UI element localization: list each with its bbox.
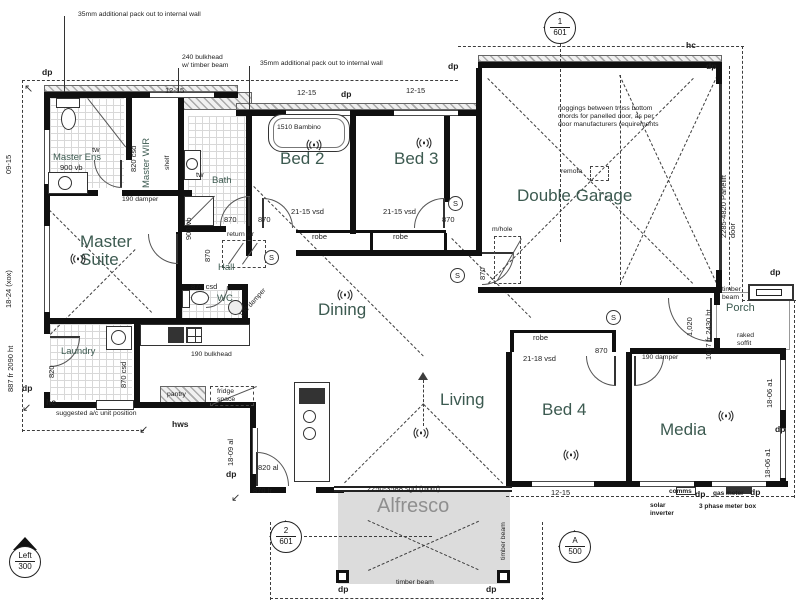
room-label-alfresco: Alfresco	[377, 495, 449, 519]
wall-segment	[510, 330, 514, 352]
room-label-garage: Double Garage	[517, 187, 632, 205]
dp-marker: dp	[695, 489, 705, 499]
ceiling-fan-icon	[563, 448, 579, 462]
ceiling-fan-icon	[70, 252, 86, 266]
hws-label: hws	[172, 419, 189, 429]
timber-beam-label: timber beam	[722, 286, 741, 302]
alfresco-post	[497, 570, 510, 583]
dp-marker: dp	[22, 383, 32, 393]
alfresco-post	[336, 570, 349, 583]
cooktop	[186, 327, 202, 343]
wall-segment	[626, 352, 632, 487]
wall-segment	[444, 110, 450, 202]
oven	[299, 388, 325, 404]
window-code: 21-18 vsd	[523, 355, 556, 364]
door-code: 887 fr 2090 ht	[7, 346, 16, 392]
comms-label: comms	[669, 488, 692, 496]
door-code: 870 fr	[253, 487, 272, 496]
marker-circle: 2601	[270, 521, 302, 553]
smoke-detector-icon: S	[606, 310, 621, 325]
roof-line-dashed	[542, 522, 543, 600]
eave-arrow: ↙	[22, 402, 31, 415]
dp-marker: dp	[706, 61, 716, 71]
oven	[168, 327, 184, 343]
window-code: 09-15	[5, 155, 14, 174]
ceiling-fan-icon	[718, 409, 734, 423]
window-code: 18-24 (xox)	[5, 270, 14, 308]
note-noggings: noggings between truss bottom chords for…	[558, 105, 659, 129]
marker-number: A	[572, 537, 577, 546]
shelf-label: shelf	[164, 156, 172, 170]
room-label-hall: Hall	[218, 262, 234, 273]
eave-arrow: ↖	[24, 83, 33, 96]
eave-arrow: ↙	[231, 492, 240, 505]
hc-label: hc	[46, 397, 56, 407]
marker-circle: 1601	[544, 12, 576, 44]
wall-segment	[506, 352, 512, 487]
leader-line	[64, 16, 65, 92]
roof-line-dashed	[22, 430, 144, 431]
window	[780, 428, 786, 478]
door-code: 820	[48, 365, 57, 378]
room-label-dining: Dining	[318, 301, 366, 319]
door-code: 1,020	[686, 317, 695, 336]
dp-marker: dp	[338, 584, 348, 594]
roof-line-dashed	[742, 46, 743, 302]
fixture-code: 900 vb	[185, 217, 194, 240]
marker-circle: Left300	[9, 546, 41, 578]
section-marker-2: 2601	[270, 521, 302, 553]
note-ac-unit: suggested a/c unit position	[56, 410, 136, 418]
door-code: 820 al	[258, 464, 278, 473]
marker-sheet: 601	[276, 536, 296, 547]
note-bulkhead-timber: 240 bulkhead w/ timber beam	[182, 54, 228, 70]
ceiling-fan-icon	[337, 288, 353, 302]
wall-segment	[444, 233, 447, 250]
toilet-bowl	[61, 108, 76, 130]
gas-meter-label: gas meter	[713, 490, 744, 498]
fixture-code: tw	[196, 171, 204, 180]
door-code: 870	[595, 347, 608, 356]
dp-marker: dp	[448, 61, 458, 71]
dp-marker: dp	[486, 584, 496, 594]
smoke-detector-icon: S	[450, 268, 465, 283]
garage-door-code: 2285-4820 Panelift door	[720, 158, 738, 238]
ceiling-fan-icon	[413, 426, 429, 440]
dp-marker: dp	[775, 424, 785, 434]
hatch-area	[44, 85, 238, 92]
bath-model: 1510 Bambino	[277, 124, 321, 132]
window-code: 12-15	[551, 489, 570, 498]
room-label-bed4: Bed 4	[542, 401, 586, 419]
floor-plan-canvas: 35mm additional pack out to internal wal…	[0, 0, 800, 606]
window	[532, 481, 594, 487]
timber-beam-label: timber beam	[500, 522, 508, 560]
roof-line-dashed	[794, 300, 795, 498]
marker-sheet: 300	[15, 561, 35, 572]
door-code: 870	[258, 216, 271, 225]
note-bulkhead-190: 190 bulkhead	[191, 351, 232, 359]
wall-segment	[714, 338, 720, 352]
solar-inverter-label: solar inverter	[650, 502, 674, 517]
room-label-master-ens: Master Ens	[53, 152, 101, 163]
section-marker-1: 1601	[544, 12, 576, 44]
door-code: 870	[479, 267, 488, 280]
raked-soffit-label: raked soffit	[737, 332, 754, 348]
leader-line	[249, 66, 250, 112]
basin	[58, 176, 72, 190]
door-code: 870 csd	[191, 283, 217, 292]
toilet	[56, 98, 80, 108]
toilet-bowl	[191, 291, 209, 305]
room-label-media: Media	[660, 421, 706, 439]
hatch-area	[478, 55, 722, 62]
wall-segment	[478, 62, 722, 68]
room-label-bath: Bath	[212, 175, 232, 186]
burner	[303, 427, 316, 440]
slab-outline	[756, 289, 782, 296]
room-label-bed3: Bed 3	[394, 150, 438, 168]
door-code: 1087 fr 2430 ht	[705, 310, 714, 360]
door-code: 870	[442, 216, 455, 225]
window-code: 12-15	[165, 87, 184, 96]
marker-number: Left	[18, 552, 31, 561]
door-swing-arc	[148, 234, 178, 264]
wall-segment	[350, 110, 356, 234]
timber-beam-label: timber beam	[396, 579, 434, 587]
window	[44, 226, 50, 312]
dp-marker: dp	[770, 267, 780, 277]
window-code: 12-15	[406, 87, 425, 96]
roof-line-dashed	[560, 44, 561, 242]
door-swing-arc	[414, 198, 444, 228]
wall-segment	[612, 330, 616, 352]
section-marker-left: Left300	[9, 546, 41, 578]
wall-segment	[476, 68, 482, 200]
robe-label: robe	[312, 233, 327, 242]
section-marker-a: A500	[559, 531, 591, 563]
door-code: 820 csd	[130, 146, 139, 172]
window	[394, 110, 458, 116]
damper-label: 190 damper	[642, 354, 678, 362]
manhole-label: m/hole	[492, 226, 512, 234]
sliding-door-code: 2250-3588 sgd (oxxo)	[367, 485, 440, 494]
robe-label: robe	[533, 334, 548, 343]
door-code: 870	[204, 249, 213, 262]
wall-segment	[714, 293, 720, 305]
dp-marker: dp	[226, 469, 236, 479]
return-air-label: return air	[227, 231, 254, 239]
room-label-living: Living	[440, 391, 484, 409]
ridge-arrow	[418, 372, 428, 380]
dp-marker: dp	[750, 487, 760, 497]
room-label-bed2: Bed 2	[280, 150, 324, 168]
marker-sheet: 500	[565, 546, 585, 557]
ceiling-fan-icon	[306, 138, 322, 152]
door-code: 870 csd	[120, 362, 129, 388]
marker-number: 2	[284, 527, 288, 536]
roof-line-dashed	[458, 46, 744, 47]
wall-segment	[296, 250, 482, 256]
roof-line-dashed	[423, 404, 503, 484]
dp-marker: dp	[341, 89, 351, 99]
wall-segment	[370, 233, 373, 250]
room-label-porch: Porch	[726, 302, 755, 315]
smoke-detector-icon: S	[448, 196, 463, 211]
basin	[186, 158, 198, 170]
wall-segment	[478, 287, 718, 293]
fridge-space-label: fridge space	[217, 388, 235, 404]
roof-line-dashed	[22, 80, 458, 81]
window	[780, 360, 786, 410]
window-code: 21-15 vsd	[291, 208, 324, 217]
roof-line-dashed	[270, 598, 544, 599]
room-label-master-wir: Master WIR	[141, 138, 152, 188]
ac-unit-box	[96, 400, 134, 410]
window-code: 18-06 a1	[764, 448, 773, 478]
wall-segment	[716, 62, 722, 84]
fixture-circle	[111, 330, 126, 345]
roof-line-dashed	[304, 536, 432, 537]
window-code: 12-15	[297, 89, 316, 98]
hc-label: hc	[686, 40, 696, 50]
roof-line-dashed	[344, 403, 424, 483]
burner	[303, 410, 316, 423]
roof-line-dashed	[22, 80, 23, 432]
marker-number: 1	[558, 18, 562, 27]
window-code: 18-09 al	[227, 439, 236, 466]
door-swing-arc	[586, 356, 616, 386]
smoke-detector-icon: S	[264, 250, 279, 265]
toilet	[182, 290, 190, 308]
robe-label: robe	[393, 233, 408, 242]
remote-label: remote	[561, 168, 582, 176]
room-label-master-suite: Master Suite	[80, 233, 132, 269]
window-code: 21-15 vsd	[383, 208, 416, 217]
room-label-wc: WC	[217, 293, 233, 304]
ceiling-fan-icon	[416, 136, 432, 150]
room-label-laundry: Laundry	[61, 346, 95, 357]
meter-box-label: 3 phase meter box	[699, 503, 756, 511]
damper-label: 190 damper	[122, 196, 158, 204]
eave-arrow: ↙	[139, 424, 148, 437]
hatch-area	[236, 103, 482, 110]
marker-sheet: 601	[550, 27, 570, 38]
pantry-label: pantry	[167, 391, 186, 399]
remote-box	[590, 166, 609, 181]
note-packout-right: 35mm additional pack out to internal wal…	[260, 60, 383, 68]
note-packout-left: 35mm additional pack out to internal wal…	[78, 11, 201, 19]
window-code: 18-06 a1	[766, 378, 775, 408]
dp-marker: dp	[42, 67, 52, 77]
wall-segment	[510, 330, 614, 333]
fixture-code: 900 vb	[60, 164, 83, 173]
marker-circle: A500	[559, 531, 591, 563]
door-code: 870	[224, 216, 237, 225]
